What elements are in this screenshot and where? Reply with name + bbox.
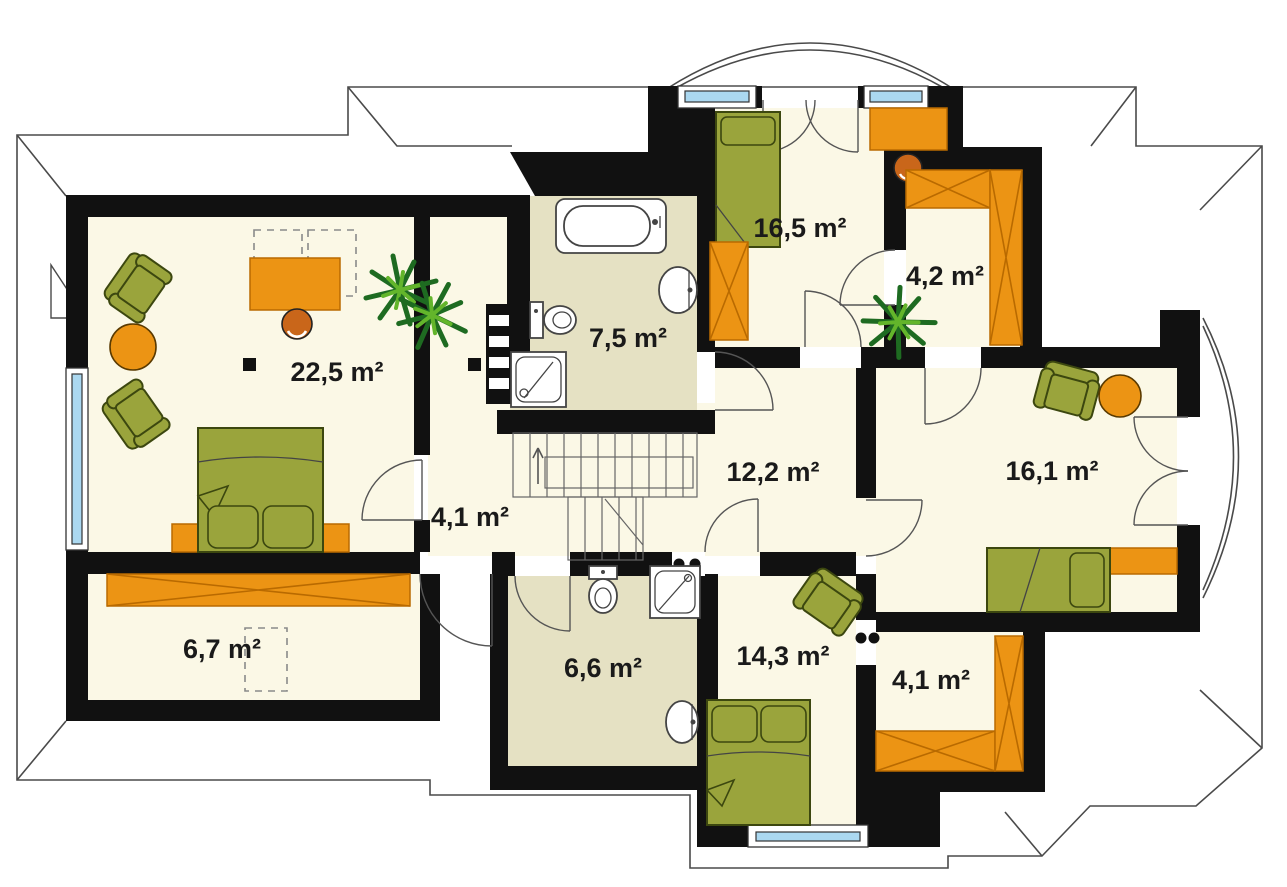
label-room-right: 16,1 m² <box>1005 456 1098 486</box>
wardrobe-closet-top-b <box>990 170 1022 345</box>
wardrobe-closet-top-a <box>906 170 990 208</box>
balcony-arc-inner <box>1203 326 1234 590</box>
nightstand <box>172 524 198 552</box>
wardrobe-closet-bottom-b <box>995 636 1023 771</box>
shower-upper <box>511 352 566 407</box>
label-hall-landing: 4,1 m² <box>431 502 509 532</box>
roof-hip-top-right <box>1200 146 1262 210</box>
pillow <box>208 506 258 548</box>
post-marker <box>468 358 481 371</box>
round-table <box>1099 375 1141 417</box>
floor-plan-drawing: 22,5 m² 7,5 m² 16,5 m² 4,2 m² 12,2 m² 16… <box>0 0 1287 887</box>
label-closet-top: 4,2 m² <box>906 261 984 291</box>
sink-upper <box>659 267 697 313</box>
label-bedroom-large: 22,5 m² <box>290 357 383 387</box>
opening-dot <box>856 633 867 644</box>
label-storage-left: 6,7 m² <box>183 634 261 664</box>
desk <box>250 258 340 310</box>
bathtub <box>556 199 666 253</box>
stool <box>282 309 312 339</box>
label-bedroom-bottom: 14,3 m² <box>736 641 829 671</box>
round-table <box>110 324 156 370</box>
roof-hip-bay <box>1005 812 1042 856</box>
pillow <box>263 506 313 548</box>
wardrobe-long <box>107 574 410 606</box>
shower-lower <box>650 566 700 618</box>
pillow <box>712 706 757 742</box>
floor-plan-page: 22,5 m² 7,5 m² 16,5 m² 4,2 m² 12,2 m² 16… <box>0 0 1287 887</box>
window-top-2 <box>864 86 928 108</box>
label-hall-center: 12,2 m² <box>726 457 819 487</box>
roof-hip-bottom-left <box>17 721 66 780</box>
chimney <box>486 304 512 404</box>
toilet-lower <box>589 566 617 613</box>
opening-dot <box>869 633 880 644</box>
sink-lower <box>666 701 698 743</box>
post-marker <box>243 358 256 371</box>
window-bottom <box>748 825 868 847</box>
wardrobe-closet-bottom-a <box>876 731 995 771</box>
window-top-1 <box>678 86 756 108</box>
roof-valley-top-center <box>348 87 512 146</box>
roof-hip-top-left <box>17 135 66 196</box>
double-bed <box>172 428 349 552</box>
pillow <box>1070 553 1104 607</box>
nightstand <box>323 524 349 552</box>
wardrobe-top-room <box>710 242 748 340</box>
label-closet-bottom: 4,1 m² <box>892 665 970 695</box>
roof-hip-bottom-right <box>1200 690 1262 748</box>
label-bathroom-lower: 6,6 m² <box>564 653 642 683</box>
label-bedroom-top: 16,5 m² <box>753 213 846 243</box>
pillow <box>721 117 775 145</box>
double-bed-bottom <box>707 700 810 825</box>
desk <box>870 108 947 150</box>
dormer-arch-inner <box>676 50 944 88</box>
window-left <box>66 368 88 550</box>
roof-valley-top-right <box>1091 87 1136 146</box>
label-bathroom-upper: 7,5 m² <box>589 323 667 353</box>
pillow <box>761 706 806 742</box>
